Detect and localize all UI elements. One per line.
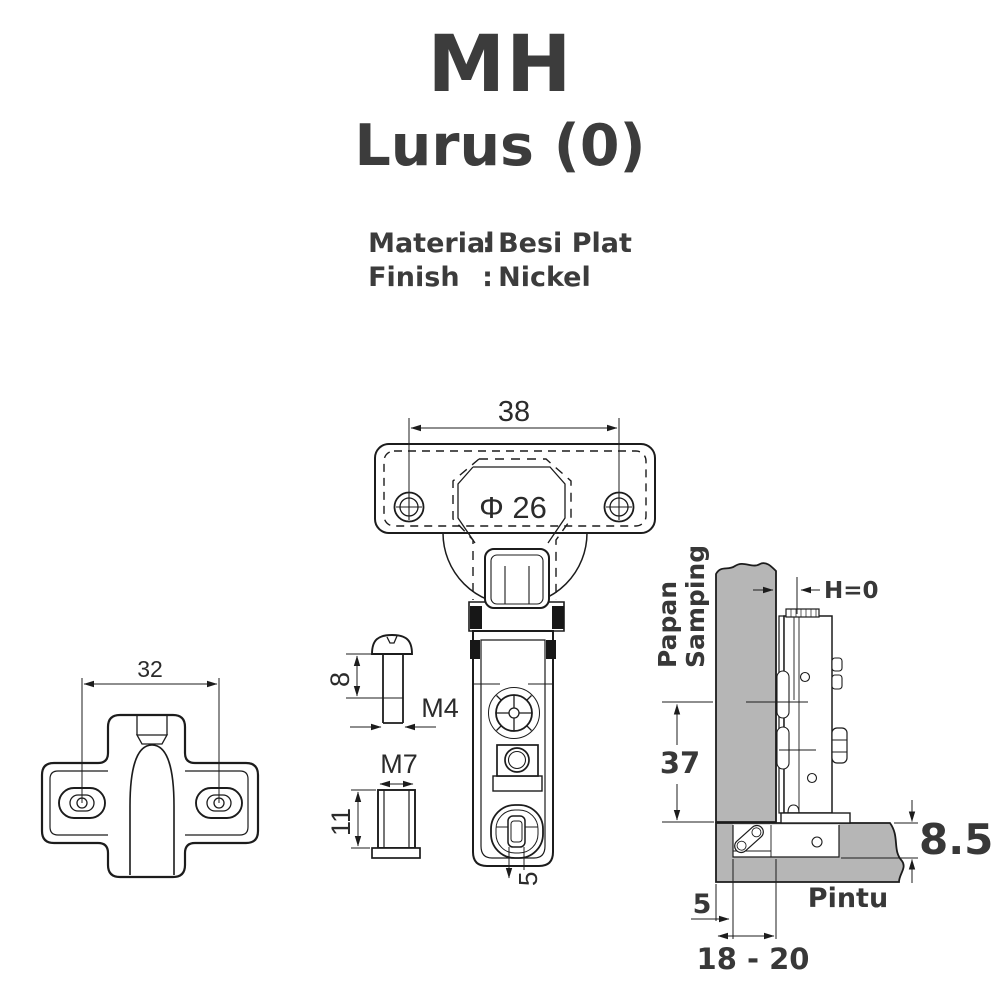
datasheet-page: MH Lurus (0) Material : Besi Plat Finish… [0, 0, 1000, 1000]
m7-dowel-detail: M7 11 [326, 749, 420, 858]
side-panel [716, 563, 776, 822]
dim-8-label: 8 [325, 672, 355, 687]
side-panel-label-line1: Papan [653, 581, 682, 668]
dim-5-label: 5 [693, 889, 712, 920]
pivot-pin-right [552, 606, 564, 629]
dim-37-label: 37 [660, 746, 700, 780]
door-label: Pintu [808, 883, 888, 914]
dim-8-5-label: 8.5 [919, 815, 993, 864]
dim-38-label: 38 [498, 396, 530, 428]
dim-11-label: 11 [326, 808, 356, 836]
m4-screw-detail: 8 M4 [325, 635, 459, 727]
m4-label: M4 [421, 693, 459, 723]
installation-section-view: H=0 Papan Samping 37 8.5 5 18 - 20 Pintu [653, 545, 993, 976]
cup-diameter-label: Φ 26 [479, 490, 547, 525]
side-panel-label-line2: Samping [681, 545, 710, 668]
m7-label: M7 [380, 749, 418, 779]
dim-18-20-label: 18 - 20 [697, 942, 810, 976]
cup-flange [781, 813, 850, 823]
pivot-pin-left [470, 606, 482, 629]
hinge-arm-top-view: 5 [469, 549, 564, 886]
dim-overlay-label: H=0 [824, 578, 879, 604]
technical-drawing: Φ 26 38 [0, 0, 1000, 1000]
dim-32-label: 32 [137, 656, 163, 682]
mounting-plate-view: 32 [42, 656, 258, 877]
dim-slot-5-label: 5 [513, 872, 543, 886]
